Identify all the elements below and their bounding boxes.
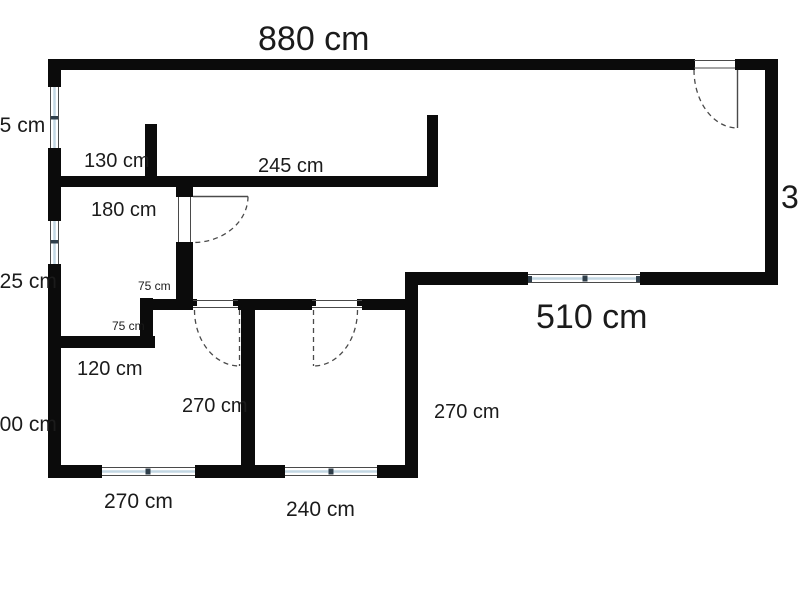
dim-bottom-left-width: 270 cm bbox=[104, 491, 173, 512]
window-left-lower bbox=[51, 221, 59, 264]
dim-left-upper: 65 cm bbox=[0, 115, 45, 136]
wall-segment bbox=[195, 465, 285, 478]
dim-room-bl-height: 270 cm bbox=[182, 396, 248, 416]
wall-segment bbox=[427, 115, 438, 187]
wall-segment bbox=[765, 59, 778, 285]
wall-segment bbox=[176, 176, 193, 197]
wall-segment bbox=[48, 59, 61, 87]
window-bottom-mid bbox=[285, 468, 377, 476]
wall-segment bbox=[48, 264, 61, 478]
door-top-right bbox=[694, 61, 738, 129]
dim-hall-wide: 245 cm bbox=[258, 156, 324, 176]
dim-top-width: 880 cm bbox=[258, 22, 370, 56]
window-bottom-left bbox=[102, 468, 195, 476]
wall-segment bbox=[377, 465, 418, 478]
wall-segment bbox=[49, 59, 692, 70]
wall-segment bbox=[640, 272, 778, 285]
dim-living-width: 510 cm bbox=[536, 300, 648, 334]
dim-hall-upper: 130 cm bbox=[84, 151, 150, 171]
window-living-room bbox=[528, 275, 640, 283]
wall-segment bbox=[48, 336, 155, 348]
door-jamb bbox=[735, 59, 738, 70]
window-left-upper bbox=[51, 87, 59, 148]
wall-segment bbox=[405, 272, 528, 285]
door-room-bottom-left bbox=[193, 301, 240, 367]
wall-segment bbox=[238, 299, 312, 310]
walls bbox=[48, 59, 778, 478]
wall-segment bbox=[241, 310, 255, 478]
wall-segment bbox=[48, 176, 438, 187]
door-symbols bbox=[179, 61, 738, 367]
dim-hall-door: 180 cm bbox=[91, 200, 157, 220]
door-room-bottom-mid bbox=[312, 301, 362, 367]
dim-right-edge-partial: 3 bbox=[781, 181, 799, 213]
dim-right-room-height: 270 cm bbox=[434, 402, 500, 422]
wall-segment bbox=[362, 299, 407, 310]
door-hall bbox=[179, 197, 249, 243]
dim-bottom-mid-width: 240 cm bbox=[286, 499, 355, 520]
dim-jog-upper: 75 cm bbox=[138, 280, 171, 292]
dim-left-lower: 300 cm bbox=[0, 414, 57, 435]
dim-jog-lower: 75 cm bbox=[112, 320, 145, 332]
floor-plan-canvas: 880 cm 65 cm 125 cm 300 cm 130 cm 245 cm… bbox=[0, 0, 800, 600]
dim-room-small: 120 cm bbox=[77, 359, 143, 379]
dim-left-middle: 125 cm bbox=[0, 271, 57, 292]
